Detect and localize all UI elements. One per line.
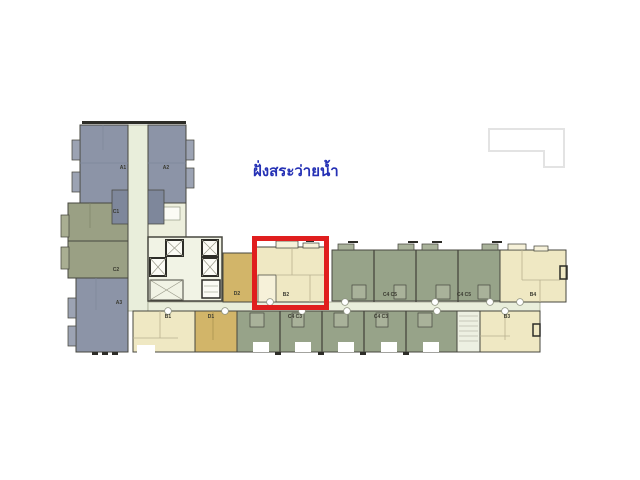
unit-label-b4: B4 xyxy=(530,292,537,298)
bottom-tick xyxy=(318,352,324,355)
door-arc xyxy=(222,308,229,315)
machine-room xyxy=(202,280,220,298)
balcony-recess xyxy=(253,342,269,352)
unit-label-a1: A1 xyxy=(120,165,127,171)
bottom-tick xyxy=(92,352,98,355)
rail-mark xyxy=(432,241,442,243)
unit-label-c4c3: C4 C3 xyxy=(374,314,388,320)
step-notch xyxy=(137,345,155,353)
unit-label-c2: C2 xyxy=(113,267,120,273)
unit-label-b1: B1 xyxy=(165,314,172,320)
unit-d1 xyxy=(195,311,237,352)
bump xyxy=(482,244,498,250)
bottom-tick xyxy=(102,352,108,355)
door-arc xyxy=(487,299,494,306)
corridor-vertical xyxy=(128,125,148,311)
balcony-recess xyxy=(295,342,311,352)
rail-mark xyxy=(348,241,358,243)
unit-label-c4c3: C4 C3 xyxy=(288,314,302,320)
bathroom-pod xyxy=(436,285,450,299)
bump xyxy=(534,246,548,251)
rail-mark xyxy=(408,241,418,243)
balcony-recess xyxy=(423,342,439,352)
bottom-tick xyxy=(360,352,366,355)
floor-plan-canvas: A1A2C1C2A3D2B2B1D1B3B4C4 C5C4 C5C4 C3C4 … xyxy=(0,0,640,480)
unit-label-c1: C1 xyxy=(113,209,120,215)
unit-label-c4c5: C4 C5 xyxy=(457,292,471,298)
door-arc xyxy=(344,308,351,315)
stairwell xyxy=(457,311,480,352)
unit-label-a2: A2 xyxy=(163,165,170,171)
door-arc xyxy=(342,299,349,306)
bathroom-pod xyxy=(112,190,128,224)
bump xyxy=(422,244,438,250)
balcony xyxy=(61,247,69,269)
balcony xyxy=(72,140,80,160)
adjacent-building-outline xyxy=(489,129,564,167)
bathroom-pod xyxy=(418,313,432,327)
balcony xyxy=(68,326,76,346)
unit-label-d2: D2 xyxy=(234,291,241,297)
unit-label-c4c5: C4 C5 xyxy=(383,292,397,298)
bottom-tick xyxy=(275,352,281,355)
top-railing xyxy=(82,121,186,124)
balcony-recess xyxy=(381,342,397,352)
highlight-box xyxy=(252,236,329,310)
bump xyxy=(398,244,414,250)
rail-mark xyxy=(492,241,502,243)
bottom-tick xyxy=(403,352,409,355)
bathroom-pod xyxy=(352,285,366,299)
bathroom-pod xyxy=(250,313,264,327)
door-arc xyxy=(432,299,439,306)
bottom-tick xyxy=(112,352,118,355)
unit-label-a3: A3 xyxy=(116,300,123,306)
bathroom-pod xyxy=(478,285,490,299)
pool-side-label: ฝั่งสระว่ายน้ำ xyxy=(253,159,339,183)
unit-label-d1: D1 xyxy=(208,314,215,320)
balcony xyxy=(68,298,76,318)
bathroom-pod xyxy=(334,313,348,327)
balcony xyxy=(61,215,69,237)
door-arc xyxy=(517,299,524,306)
unit-label-b3: B3 xyxy=(504,314,511,320)
balcony xyxy=(186,168,194,188)
bump xyxy=(508,244,526,250)
unit-a3 xyxy=(76,278,128,352)
balcony xyxy=(186,140,194,160)
balcony xyxy=(72,172,80,192)
bump xyxy=(338,244,354,250)
bathroom-pod xyxy=(148,190,164,224)
door-arc xyxy=(434,308,441,315)
balcony-recess xyxy=(338,342,354,352)
